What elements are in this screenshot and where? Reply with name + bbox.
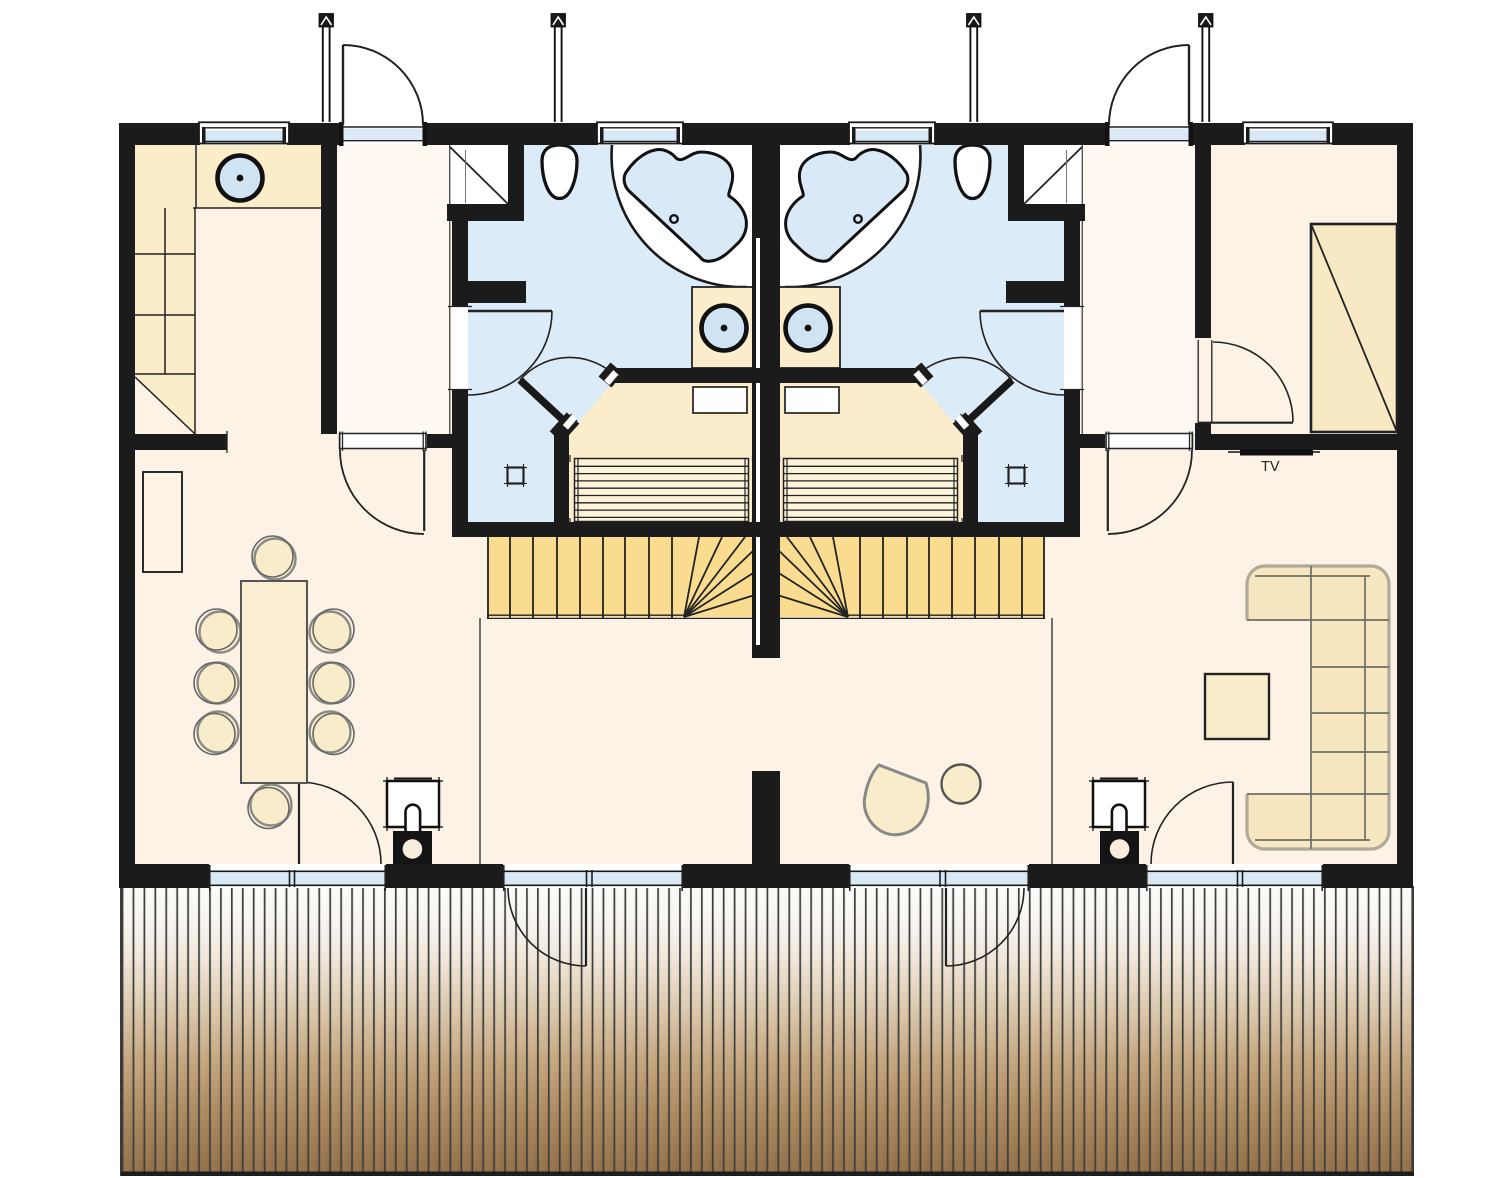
svg-text:TV: TV	[1261, 459, 1280, 475]
